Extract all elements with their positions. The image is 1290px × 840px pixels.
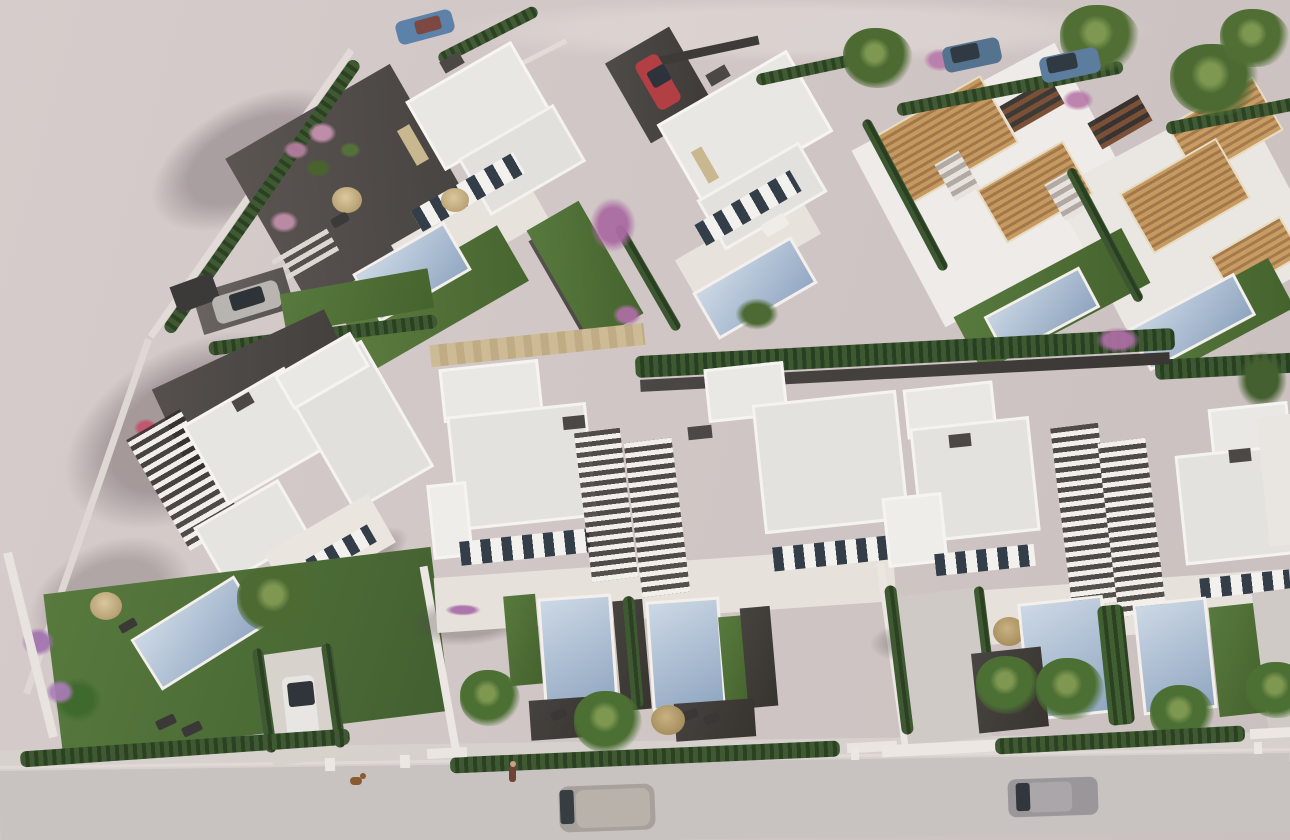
car-grey-windshield [1016,783,1031,811]
villa-f-roof-hatch [948,433,971,448]
corner-green-shrub-2 [335,139,365,161]
corner-parasol [332,187,362,213]
street-post-4 [1254,742,1262,754]
street-post-1 [325,758,335,771]
villa-g-roof-hatch [1228,448,1251,463]
palm-de-1 [460,670,520,726]
wall-d-street [427,747,467,759]
van-roof [575,788,650,829]
street-post-2 [400,755,410,768]
palm-f-2 [1036,658,1104,720]
mid-pink-shrub-2 [1087,322,1149,358]
med-palm-4 [1220,9,1290,67]
mid-pink-shrub-1 [607,300,647,330]
street-post-3 [851,748,859,760]
med-palm-1 [843,28,913,88]
mid-green-tree [727,292,787,336]
wall-right-street [1250,727,1290,739]
palm-de-2 [574,691,642,753]
med-pink-shrub-2 [1056,85,1100,115]
pedestrian-head [510,761,516,767]
van-windshield [559,790,574,824]
villa-a-parasol [441,188,469,212]
car-white-glass [287,681,315,708]
villa-c-parasol [90,592,122,620]
palm-f-1 [976,656,1040,714]
villa-d-roof-hatch [562,415,585,430]
villa-e-roof-hatch [687,425,712,440]
villa-e-pool [645,597,726,712]
parasol-de [651,705,685,735]
planter-d [438,602,488,618]
architectural-render-scene [0,0,1290,840]
corner-pink-shrub-3 [264,207,304,237]
car-grey-roof [1027,781,1072,813]
pink-tree-between-ab [581,187,645,263]
dog-head [360,773,366,779]
pedestrian-body [509,766,516,782]
villa-c-palm [237,567,317,633]
corner-green-shrub-1 [300,155,336,181]
